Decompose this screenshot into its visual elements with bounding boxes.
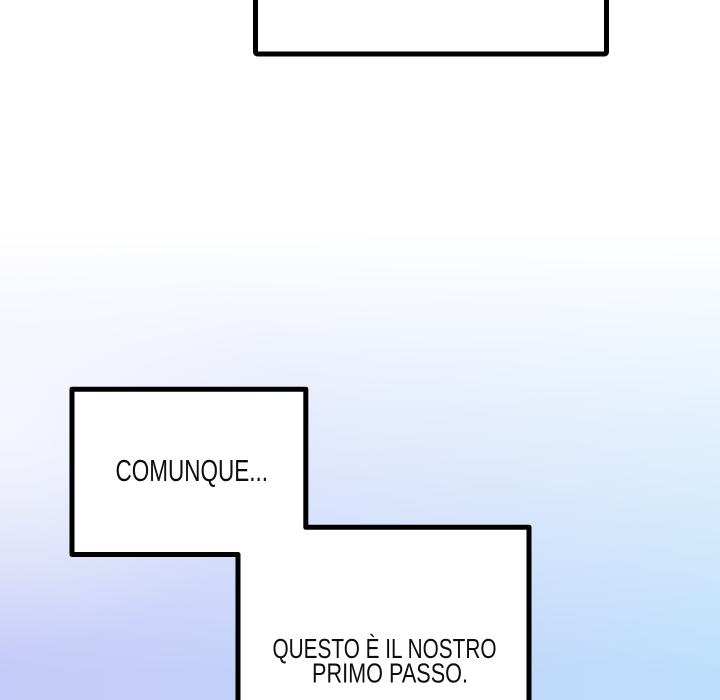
svg-text:COMUNQUE...: COMUNQUE... (116, 454, 269, 488)
svg-text:PRIMO PASSO.: PRIMO PASSO. (312, 657, 468, 688)
